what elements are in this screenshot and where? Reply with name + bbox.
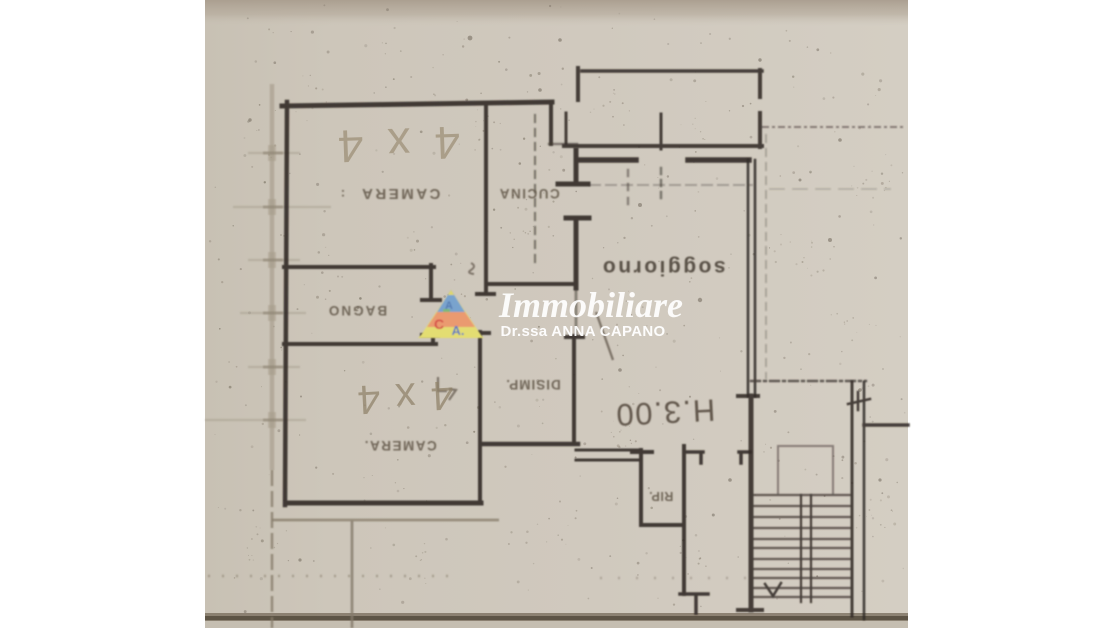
svg-text:BAGNO: BAGNO: [327, 303, 387, 318]
svg-text:A: A: [445, 300, 453, 312]
svg-text:4x4: 4x4: [341, 372, 454, 424]
svg-text:4x4: 4x4: [313, 116, 461, 173]
svg-text:Dr.ssa ANNA CAPANO: Dr.ssa ANNA CAPANO: [501, 323, 666, 340]
svg-text:RIP.: RIP.: [649, 489, 674, 503]
svg-text:soggiorno: soggiorno: [600, 256, 725, 279]
svg-text:CAMERA: CAMERA: [360, 185, 441, 202]
svg-text:CUCINA: CUCINA: [498, 186, 560, 201]
svg-text:Immobiliare: Immobiliare: [498, 285, 683, 325]
svg-text:C: C: [434, 316, 444, 332]
svg-text:CAMERA.: CAMERA.: [363, 438, 437, 453]
svg-text::: :: [341, 187, 345, 202]
svg-text:A.: A.: [452, 323, 465, 338]
svg-text:DISIMP.: DISIMP.: [505, 377, 561, 392]
svg-text:H.3.00: H.3.00: [614, 392, 716, 432]
